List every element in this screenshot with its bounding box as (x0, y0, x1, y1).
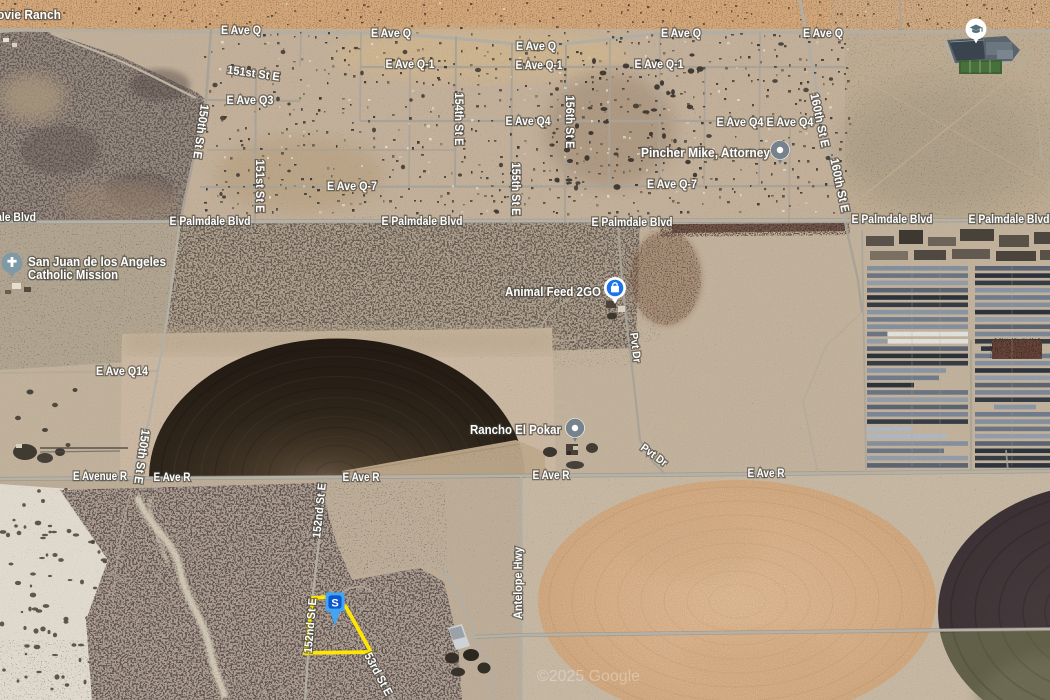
svg-text:155th St E: 155th St E (509, 163, 521, 216)
svg-text:E Ave R: E Ave R (343, 470, 380, 484)
svg-text:E Palmdale Blvd: E Palmdale Blvd (170, 214, 251, 228)
svg-text:E Ave Q4: E Ave Q4 (506, 116, 552, 128)
svg-text:Movie Ranch: Movie Ranch (0, 7, 61, 22)
svg-text:Antelope Hwy: Antelope Hwy (511, 547, 525, 619)
svg-text:E Ave Q4: E Ave Q4 (717, 115, 764, 129)
svg-text:E Ave Q-7: E Ave Q-7 (327, 179, 377, 193)
svg-text:E Palmdale Blvd: E Palmdale Blvd (592, 215, 673, 229)
svg-text:156th St E: 156th St E (563, 96, 575, 149)
svg-text:E Palmdale Blvd: E Palmdale Blvd (0, 210, 36, 224)
svg-text:E Palmdale Blvd: E Palmdale Blvd (969, 212, 1050, 226)
svg-text:E Ave R: E Ave R (533, 468, 570, 482)
svg-text:E Ave Q: E Ave Q (661, 26, 701, 40)
svg-text:E Ave Q: E Ave Q (371, 26, 411, 40)
svg-text:©2025 Google: ©2025 Google (537, 668, 640, 685)
svg-text:E Ave Q-7: E Ave Q-7 (647, 177, 697, 191)
svg-text:E Avenue R: E Avenue R (73, 469, 127, 483)
svg-text:E Ave Q4: E Ave Q4 (767, 115, 814, 129)
svg-text:E Palmdale Blvd: E Palmdale Blvd (852, 212, 933, 226)
svg-text:E Ave Q: E Ave Q (803, 26, 843, 40)
svg-text:E Ave Q14: E Ave Q14 (96, 364, 148, 378)
svg-text:Catholic Mission: Catholic Mission (28, 267, 118, 282)
svg-text:E Ave R: E Ave R (154, 470, 191, 484)
svg-text:154th St E: 154th St E (452, 93, 464, 146)
svg-text:E Ave Q3: E Ave Q3 (227, 93, 274, 107)
svg-text:Pincher Mike, Attorney: Pincher Mike, Attorney (641, 145, 771, 160)
svg-text:151st St E: 151st St E (253, 160, 265, 213)
svg-text:Animal Feed 2GO: Animal Feed 2GO (505, 284, 601, 299)
svg-text:E Ave R: E Ave R (748, 466, 785, 480)
svg-text:E Ave Q: E Ave Q (516, 39, 556, 53)
svg-text:E Ave Q-1: E Ave Q-1 (516, 60, 564, 72)
svg-text:S: S (331, 597, 338, 609)
svg-text:E Ave Q-1: E Ave Q-1 (386, 57, 435, 71)
svg-text:E Ave Q-1: E Ave Q-1 (635, 57, 684, 71)
svg-text:Rancho El Pokar: Rancho El Pokar (470, 422, 561, 437)
svg-text:E Palmdale Blvd: E Palmdale Blvd (382, 214, 463, 228)
svg-text:E Ave Q: E Ave Q (221, 23, 261, 37)
